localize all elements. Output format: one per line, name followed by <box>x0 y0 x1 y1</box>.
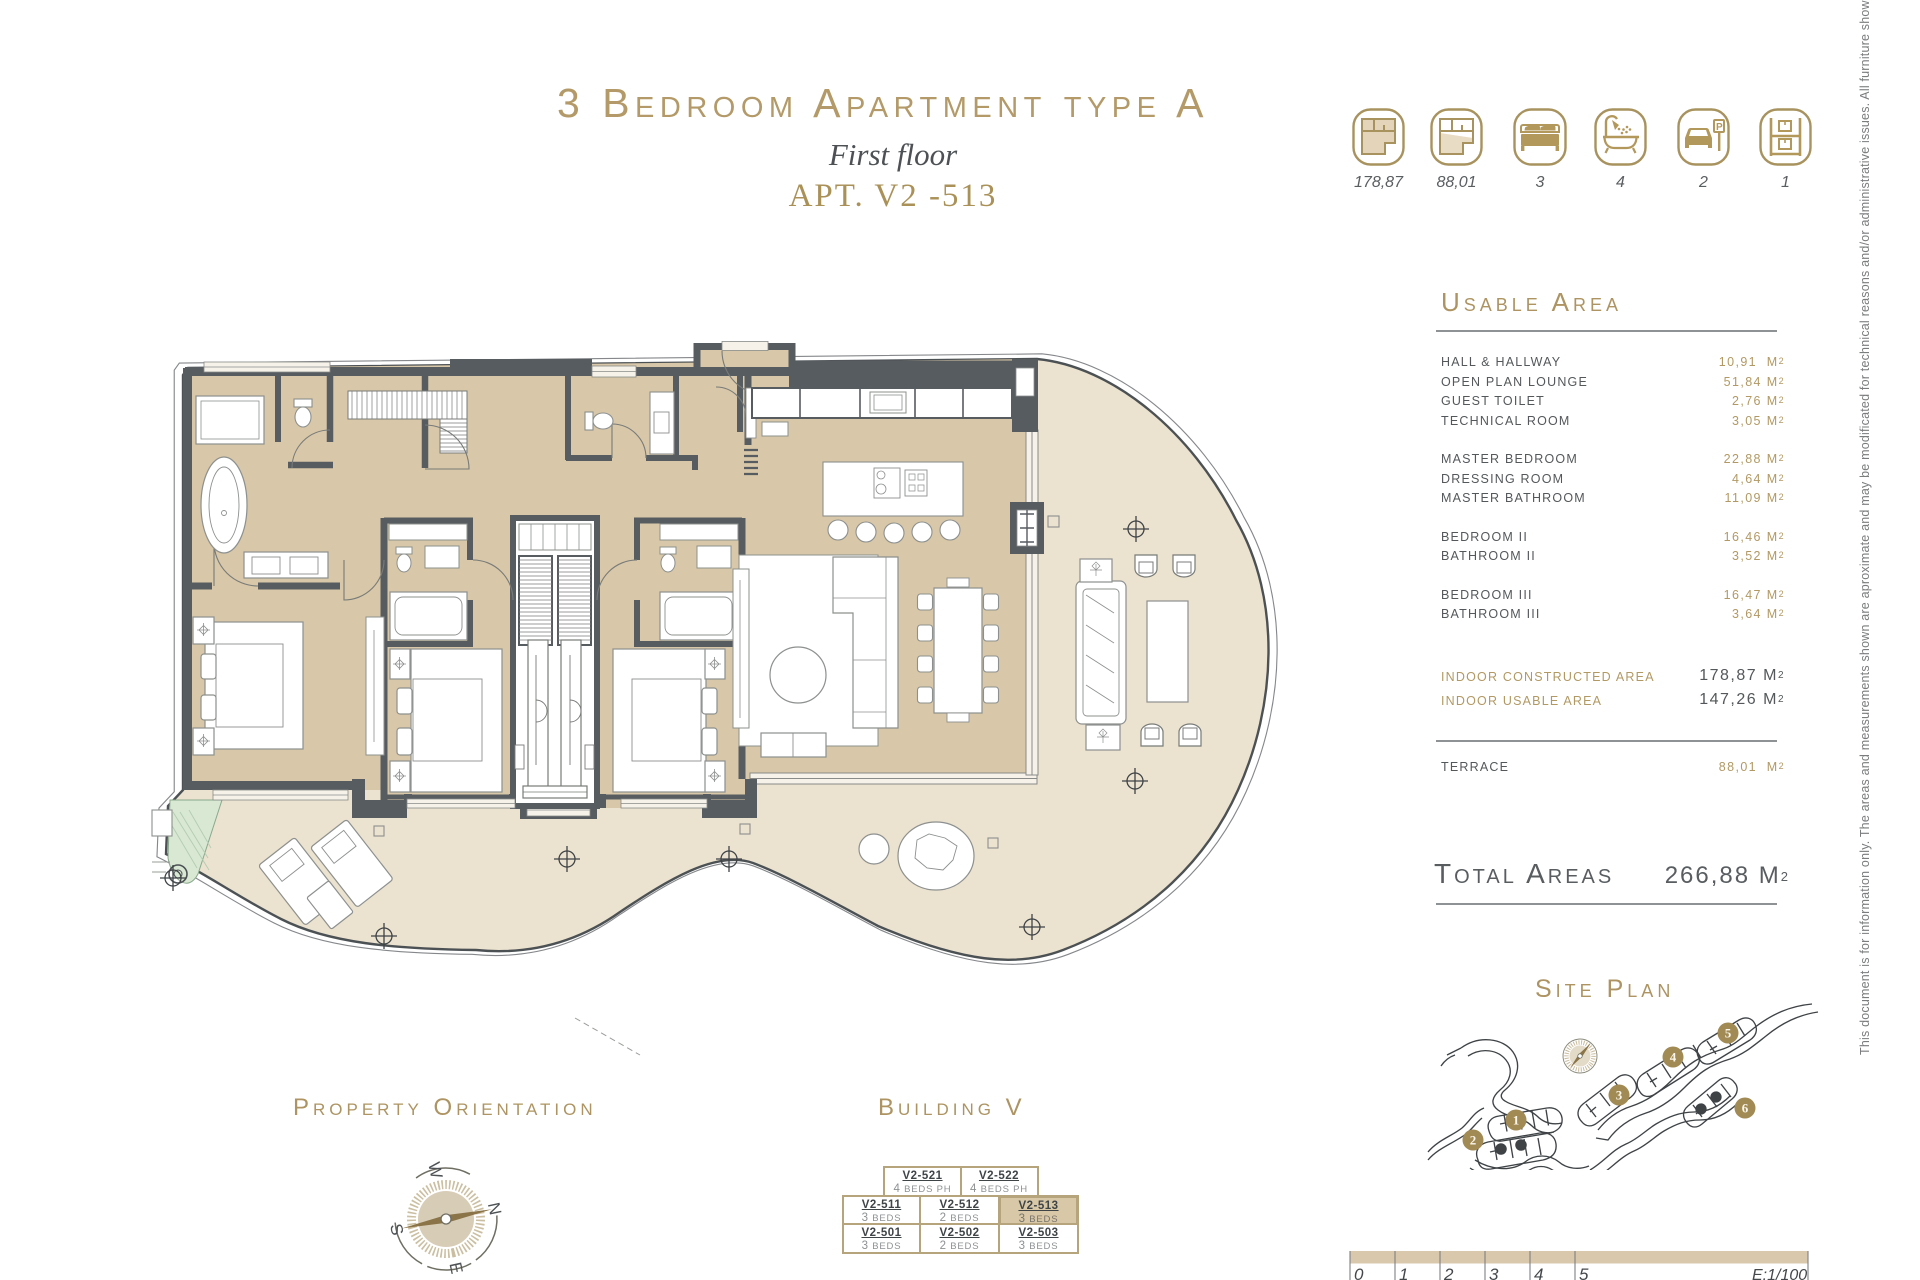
svg-text:1: 1 <box>1399 1265 1408 1280</box>
svg-text:2: 2 <box>1470 1133 1477 1148</box>
svg-text:4: 4 <box>1534 1265 1543 1280</box>
svg-text:3: 3 <box>1616 1088 1623 1103</box>
svg-text:2: 2 <box>1443 1265 1454 1280</box>
svg-text:6: 6 <box>1742 1101 1749 1116</box>
svg-text:E: E <box>445 1260 466 1275</box>
svg-text:W: W <box>424 1160 446 1180</box>
svg-text:3: 3 <box>1489 1265 1499 1280</box>
svg-text:5: 5 <box>1579 1265 1589 1280</box>
svg-text:P: P <box>1716 122 1723 133</box>
svg-text:0: 0 <box>1354 1265 1364 1280</box>
svg-text:1: 1 <box>1513 1113 1520 1128</box>
svg-text:S: S <box>386 1222 407 1237</box>
svg-text:E:1/100: E:1/100 <box>1752 1267 1807 1280</box>
svg-text:4: 4 <box>1670 1050 1677 1065</box>
svg-text:5: 5 <box>1725 1026 1732 1041</box>
svg-text:N: N <box>484 1201 505 1217</box>
